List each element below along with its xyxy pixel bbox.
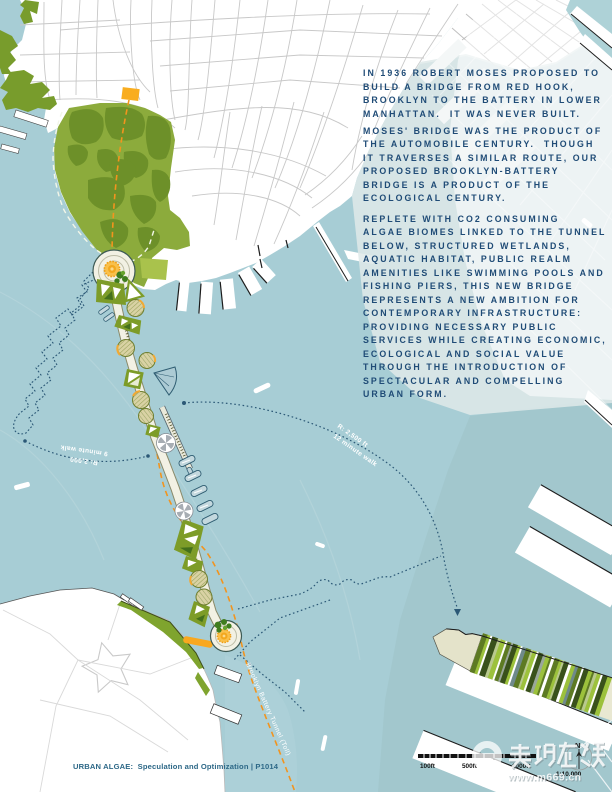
svg-text:www.m669.cn: www.m669.cn [507,772,581,784]
svg-text:100ft: 100ft [420,763,436,770]
svg-text:WWW.M669.CN: WWW.M669.CN [482,783,511,788]
